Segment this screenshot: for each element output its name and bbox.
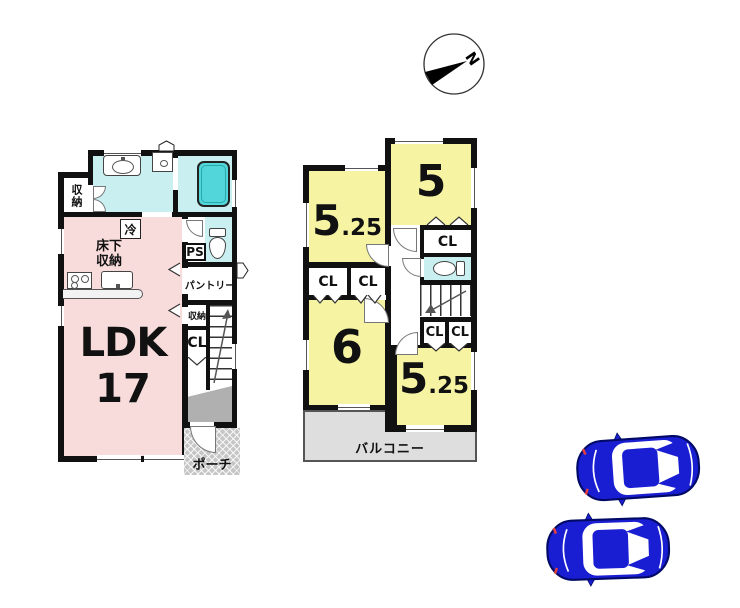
car-icon — [564, 425, 715, 511]
toilet-bowl-2f — [433, 261, 456, 276]
porch-label: ポーチ — [186, 455, 238, 471]
room-se-frac: .25 — [428, 375, 469, 398]
pantry-door-marker — [167, 262, 182, 277]
room-ne-size: 5 — [391, 160, 471, 210]
stairs-arrow-2f — [420, 285, 471, 316]
toilet-tank-1f — [209, 228, 226, 237]
floor-storage-line2: 収納 — [96, 255, 122, 270]
window — [338, 404, 370, 410]
fold-door-marker — [353, 295, 383, 305]
room-nw-frac: .25 — [341, 217, 382, 240]
stairs-arrow-1f — [210, 305, 232, 387]
floor-storage-label: 床下 収納 — [88, 239, 130, 271]
fold-door-marker — [312, 295, 344, 305]
pantry-label: パントリー — [186, 272, 234, 296]
window — [471, 168, 477, 208]
cl-label: CL — [309, 269, 347, 294]
kitchen-counter — [63, 289, 143, 299]
cl-label: CL — [424, 323, 445, 342]
window — [471, 352, 477, 390]
fold-door-marker — [449, 215, 469, 225]
compass-icon: N — [420, 30, 488, 98]
bathtub — [197, 161, 230, 207]
backdoor-marker — [236, 262, 249, 279]
ldk-label: LDK — [64, 320, 182, 366]
floor-storage-line1: 床下 — [96, 240, 122, 255]
bath-cabinet — [152, 152, 173, 172]
toilet-tank-2f — [456, 261, 465, 276]
storage-label: 収納 — [188, 306, 206, 325]
stove — [67, 272, 92, 289]
washroom-door-gap — [142, 212, 172, 217]
kitchen-sink — [101, 271, 133, 289]
compass: N — [420, 30, 488, 98]
ps-box: PS — [184, 243, 206, 261]
balcony-label: バルコニー — [303, 438, 477, 456]
fridge-box: 冷 — [120, 219, 141, 239]
window — [58, 229, 64, 254]
room-nw-size: 5 .25 — [309, 200, 385, 250]
window — [144, 455, 187, 462]
cl-label: CL — [449, 323, 471, 342]
fold-door-marker — [426, 343, 446, 353]
cl-label: CL — [351, 269, 385, 294]
window — [345, 165, 378, 171]
window — [232, 344, 237, 369]
room-se-size: 5 .25 — [397, 358, 471, 410]
room-sw-size: 6 — [309, 324, 385, 378]
fridge-label: 冷 — [124, 221, 136, 238]
fold-door-marker — [426, 215, 446, 225]
room-ne-num: 5 — [416, 160, 447, 204]
room-se-num: 5 — [399, 358, 428, 400]
storage-door-marker — [167, 303, 182, 318]
closet-upper-left-label: 収納 — [64, 179, 88, 212]
window — [97, 455, 141, 462]
window — [232, 180, 237, 207]
cl-label-1f: CL — [188, 331, 206, 355]
cl-fold-door-marker — [187, 357, 207, 367]
window — [395, 138, 443, 144]
washbasin — [103, 155, 141, 176]
vent-window-marker — [158, 140, 175, 152]
bath-door-gap — [173, 158, 178, 190]
ldk-size-label: 17 — [64, 366, 182, 412]
fold-door-marker — [449, 343, 469, 353]
room-nw-num: 5 — [312, 200, 341, 242]
ps-label: PS — [186, 245, 203, 259]
car-icon — [535, 508, 684, 589]
window — [406, 425, 444, 432]
floorplan-canvas: N — [0, 0, 740, 608]
cl-label: CL — [424, 231, 471, 252]
room-sw-num: 6 — [331, 324, 363, 370]
